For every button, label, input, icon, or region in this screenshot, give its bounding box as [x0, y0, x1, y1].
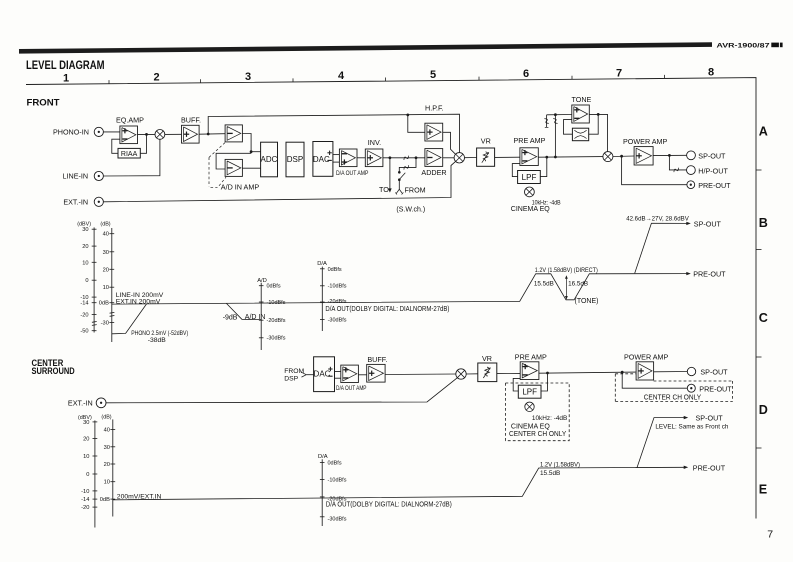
svg-text:-14: -14	[80, 301, 88, 307]
svg-text:-50: -50	[80, 329, 88, 335]
svg-text:A: A	[759, 124, 768, 138]
svg-text:(dB): (dB)	[100, 221, 110, 227]
svg-text:TONE: TONE	[572, 95, 592, 104]
svg-text:E: E	[759, 482, 767, 496]
svg-text:4: 4	[338, 70, 345, 82]
svg-text:LINE-IN: LINE-IN	[63, 172, 89, 181]
svg-text:PRE-OUT: PRE-OUT	[693, 464, 726, 473]
svg-text:-20dBfs: -20dBfs	[328, 299, 347, 305]
svg-text:0dBfs: 0dBfs	[328, 461, 342, 467]
svg-text:ADC: ADC	[261, 155, 278, 164]
svg-text:20: 20	[82, 244, 88, 250]
svg-text:15.5dB: 15.5dB	[540, 470, 560, 477]
svg-text:CINEMA EQ: CINEMA EQ	[511, 424, 550, 431]
svg-text:POWER AMP: POWER AMP	[624, 352, 669, 361]
svg-text:5: 5	[430, 69, 436, 81]
svg-text:30: 30	[103, 250, 109, 256]
svg-text:6: 6	[523, 68, 529, 80]
svg-text:D/A OUT AMP: D/A OUT AMP	[336, 170, 368, 177]
svg-text:-9dB: -9dB	[223, 315, 238, 322]
svg-text:AVR-1900/87: AVR-1900/87	[717, 43, 770, 50]
svg-text:30: 30	[104, 445, 110, 451]
svg-text:0dB: 0dB	[100, 497, 110, 503]
svg-text:CINEMA EQ: CINEMA EQ	[511, 206, 550, 213]
svg-text:BUFF.: BUFF.	[367, 355, 387, 364]
svg-text:ADDER: ADDER	[421, 168, 446, 177]
svg-text:PHONO-IN: PHONO-IN	[53, 127, 89, 136]
svg-text:PRE-OUT: PRE-OUT	[698, 181, 731, 190]
svg-text:PRE AMP: PRE AMP	[515, 352, 547, 361]
svg-text:PRE-OUT: PRE-OUT	[693, 270, 726, 279]
svg-text:INV.: INV.	[368, 138, 381, 147]
svg-text:42.6dB→27V, 28.6dBV: 42.6dB→27V, 28.6dBV	[626, 216, 689, 223]
svg-text:10: 10	[82, 260, 88, 266]
svg-text:0dB: 0dB	[99, 301, 109, 307]
svg-text:EXT.IN 200mV: EXT.IN 200mV	[116, 298, 161, 305]
svg-text:7: 7	[767, 529, 773, 541]
svg-text:0dBfs: 0dBfs	[328, 267, 342, 273]
svg-text:H.P.F.: H.P.F.	[425, 103, 444, 112]
svg-text:-14: -14	[81, 497, 89, 503]
svg-text:VR: VR	[482, 354, 492, 363]
svg-text:LEVEL DIAGRAM: LEVEL DIAGRAM	[26, 58, 105, 72]
svg-text:LEVEL: Same as Front ch: LEVEL: Same as Front ch	[655, 423, 728, 430]
svg-text:BUFF.: BUFF.	[181, 116, 201, 125]
svg-text:C: C	[759, 311, 768, 325]
svg-text:30: 30	[82, 227, 88, 233]
svg-text:-10dBfs: -10dBfs	[328, 284, 347, 290]
svg-text:FROM: FROM	[405, 185, 426, 194]
svg-text:SP-OUT: SP-OUT	[700, 368, 728, 377]
svg-text:1.2V (1.58dBV) (DIRECT): 1.2V (1.58dBV) (DIRECT)	[535, 267, 598, 274]
svg-text:DAC: DAC	[313, 155, 330, 164]
svg-text:DAC: DAC	[314, 369, 331, 378]
svg-text:DSP: DSP	[284, 375, 298, 382]
svg-text:CENTER CH ONLY: CENTER CH ONLY	[644, 394, 702, 401]
svg-text:0: 0	[86, 472, 89, 478]
svg-text:CENTER CH ONLY: CENTER CH ONLY	[509, 431, 567, 438]
svg-text:10: 10	[103, 285, 109, 291]
svg-text:16.5dB: 16.5dB	[568, 281, 588, 288]
svg-text:0dBfs: 0dBfs	[267, 284, 281, 290]
svg-text:SP-OUT: SP-OUT	[696, 413, 724, 422]
svg-text:-30dBfs: -30dBfs	[267, 336, 286, 342]
svg-text:EXT.-IN: EXT.-IN	[63, 197, 88, 206]
svg-text:DSP: DSP	[287, 155, 303, 164]
svg-text:SURROUND: SURROUND	[32, 366, 76, 376]
svg-text:LPF: LPF	[522, 173, 537, 182]
svg-text:D/A OUT AMP: D/A OUT AMP	[336, 385, 367, 392]
svg-text:-30dBfs: -30dBfs	[328, 517, 347, 523]
svg-text:H/P-OUT: H/P-OUT	[698, 166, 728, 175]
svg-text:8: 8	[708, 66, 714, 78]
svg-text:-10dBfs: -10dBfs	[267, 300, 286, 306]
svg-text:D: D	[759, 403, 768, 417]
svg-text:-20: -20	[80, 313, 88, 319]
svg-text:20: 20	[103, 267, 109, 273]
svg-text:-10: -10	[81, 489, 89, 495]
svg-text:TO: TO	[379, 185, 389, 194]
svg-text:FROM: FROM	[284, 368, 304, 375]
svg-text:-30: -30	[101, 321, 109, 327]
svg-text:20: 20	[83, 437, 89, 443]
svg-text:-10dBfs: -10dBfs	[328, 477, 347, 483]
svg-text:-20: -20	[81, 505, 89, 511]
svg-text:PRE-OUT: PRE-OUT	[699, 384, 732, 393]
svg-text:-38dB: -38dB	[148, 337, 167, 344]
svg-text:1.2V (1.58dBV): 1.2V (1.58dBV)	[540, 461, 580, 468]
svg-text:200mV/EXT.IN: 200mV/EXT.IN	[117, 493, 162, 500]
svg-text:-20dBfs: -20dBfs	[267, 318, 286, 324]
svg-text:7: 7	[616, 67, 622, 79]
svg-text:A/D: A/D	[257, 278, 267, 284]
svg-text:PRE AMP: PRE AMP	[514, 136, 546, 145]
svg-text:RIAA: RIAA	[121, 151, 138, 158]
svg-text:B: B	[759, 216, 768, 230]
svg-text:40: 40	[104, 427, 110, 433]
svg-text:10kHz: -4dB: 10kHz: -4dB	[532, 415, 568, 422]
svg-text:POWER AMP: POWER AMP	[623, 137, 668, 146]
svg-text:D/A: D/A	[318, 454, 328, 460]
svg-text:D/A: D/A	[317, 261, 327, 267]
svg-text:FRONT: FRONT	[27, 98, 60, 109]
svg-text:A/D IN AMP: A/D IN AMP	[221, 183, 260, 192]
svg-text:40: 40	[103, 232, 109, 238]
svg-text:20: 20	[104, 462, 110, 468]
svg-text:30: 30	[83, 420, 89, 426]
svg-text:D/A OUT(DOLBY DIGITAL: DIALNOR: D/A OUT(DOLBY DIGITAL: DIALNORM-27dB)	[325, 306, 449, 313]
svg-text:15.5dB: 15.5dB	[534, 281, 554, 288]
svg-text:0: 0	[85, 278, 88, 284]
svg-text:VR: VR	[481, 137, 491, 146]
svg-text:LPF: LPF	[522, 388, 537, 397]
svg-text:PHONO 2.5mV (-52dBV): PHONO 2.5mV (-52dBV)	[131, 330, 188, 337]
svg-text:D/A OUT(DOLBY DIGITAL: DIALNOR: D/A OUT(DOLBY DIGITAL: DIALNORM-27dB)	[326, 502, 452, 509]
svg-text:10: 10	[104, 480, 110, 486]
svg-text:EQ.AMP: EQ.AMP	[116, 116, 144, 125]
svg-text:SP-OUT: SP-OUT	[698, 151, 726, 160]
svg-text:(dB): (dB)	[101, 414, 111, 420]
svg-text:-30dBfs: -30dBfs	[328, 317, 347, 323]
svg-text:2: 2	[153, 72, 159, 84]
svg-text:10: 10	[83, 454, 89, 460]
svg-text:1: 1	[63, 73, 69, 85]
svg-text:3: 3	[245, 71, 251, 83]
svg-text:(TONE): (TONE)	[575, 298, 599, 305]
svg-text:(S.W.ch.): (S.W.ch.)	[396, 207, 425, 214]
svg-text:EXT.-IN: EXT.-IN	[68, 399, 93, 408]
svg-text:SP-OUT: SP-OUT	[694, 219, 722, 228]
